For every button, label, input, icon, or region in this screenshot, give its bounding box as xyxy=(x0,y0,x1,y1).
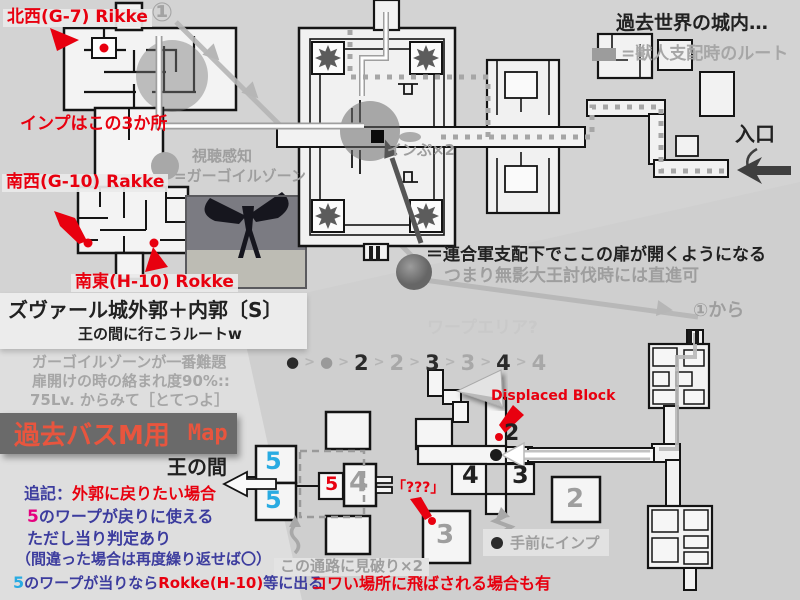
room-5-center: 5 xyxy=(325,475,338,495)
seq-token: 2 xyxy=(354,352,369,374)
gargoyle-note-1: ガーゴイルゾーンが一番難題 xyxy=(32,355,226,371)
world-note: 過去世界の城内… xyxy=(616,14,768,34)
from-one-label: ①から xyxy=(693,302,744,321)
page-subtitle: 王の間に行こうルートw xyxy=(78,327,242,343)
seq-token: > xyxy=(409,356,420,370)
gargoyle-note-3: 75Lv. からみて［とてつよ］ xyxy=(30,393,229,409)
label-imp-x2: インぷ×2 xyxy=(387,143,455,159)
label-sw-rakke: 南西(G-10) Rakke xyxy=(2,174,168,192)
scary-note: コワい場所に飛ばされる場合も有 xyxy=(311,576,551,593)
room-2-gray: 2 xyxy=(566,486,584,513)
castle-map xyxy=(277,0,585,260)
gargoyle-zone-blob-nw xyxy=(136,40,208,112)
warp-area-faint-label: ワープエリア? xyxy=(427,320,538,338)
room-5-top: 5 xyxy=(265,449,282,474)
room-5-bottom: 5 xyxy=(265,488,282,513)
door-note-line1: ＝連合軍支配下でここの扉が開くようになる xyxy=(426,247,766,265)
note-line-2: 5のワープが戻りに使える xyxy=(27,509,213,527)
map-banner: 過去バスM用 Map xyxy=(0,413,237,454)
note-2-rest: のワープが戻りに使える xyxy=(39,507,214,526)
gargoyle-zone-label: =ガーゴイルゾーン xyxy=(174,169,306,185)
throne-label: 王の間 xyxy=(167,457,227,478)
note-5-mid: のワープが当りなら xyxy=(24,574,158,592)
seq-token: > xyxy=(338,356,349,370)
junction-dot xyxy=(490,449,502,461)
mystery-label: 「???」 xyxy=(392,481,444,496)
note-1-prefix: 追記： xyxy=(24,484,72,503)
imp-near-band: 手前にインプ xyxy=(483,529,609,556)
maze-south-west xyxy=(78,187,188,279)
entrance-arrow-icon xyxy=(737,149,791,184)
cell-4-black: 4 xyxy=(462,463,479,488)
entrance-label: 入口 xyxy=(735,124,775,145)
seq-token: > xyxy=(480,356,491,370)
room-3-gray: 3 xyxy=(436,522,454,549)
imp-near-label: 手前にインプ xyxy=(510,532,600,553)
note-line-3: ただし当り判定あり xyxy=(27,531,171,548)
gargoyle-note-2: 扉開けの時の絡まれ度90%:: xyxy=(32,374,230,390)
room-4-throne: 4 xyxy=(349,467,368,496)
note-1-red: 外郭に戻りたい場合 xyxy=(72,484,216,503)
seq-token: 3 xyxy=(461,352,476,374)
beast-route-text: =獣人支配時のルート xyxy=(621,46,788,64)
note-line-4: （間違った場合は再度繰り返せば〇） xyxy=(16,552,271,568)
note-5-red: Rokke(H-10) xyxy=(158,574,263,592)
note-2-num: 5 xyxy=(27,507,39,527)
beast-route-legend: =獣人支配時のルート xyxy=(592,46,788,64)
seq-token: 2 xyxy=(390,352,405,374)
circled-one-icon: ① xyxy=(151,0,173,27)
seq-token: 4 xyxy=(532,352,547,374)
cell-3-black: 3 xyxy=(512,463,529,488)
displaced-block-label: Displaced Block xyxy=(491,389,615,404)
seq-token: > xyxy=(516,356,527,370)
seq-token: ● xyxy=(286,355,299,371)
seq-token: ● xyxy=(320,355,333,371)
seq-token: > xyxy=(445,356,456,370)
note-line-5: 5のワープが当りならRokke(H-10)等に出る xyxy=(13,575,323,592)
page-title: ズヴァール城外郭＋内郭〔S〕 xyxy=(8,300,282,321)
seq-token: > xyxy=(374,356,385,370)
banner-map-label: Map xyxy=(188,421,228,446)
seq-token: > xyxy=(304,356,315,370)
gargoyle-sense-label: 視聴感知 xyxy=(192,149,252,165)
screenshot-root: 過去バスM用 Map 手前にインプ 北西(G-7) Rikke ① 過去世界の城… xyxy=(0,0,800,600)
route-swatch-icon xyxy=(592,48,616,61)
label-se-rokke: 南東(H-10) Rokke xyxy=(71,274,238,292)
imp-dot-icon xyxy=(491,537,503,549)
cell-2-black: 2 xyxy=(504,422,519,445)
warp-sequence: ●>●>2>2>3>3>4>4 xyxy=(286,350,546,376)
note-line-1: 追記：外郭に戻りたい場合 xyxy=(24,486,216,503)
center-block xyxy=(371,130,384,143)
label-imp-spots: インプはこの3か所 xyxy=(20,116,167,134)
seq-token: 3 xyxy=(425,352,440,374)
note-5-num: 5 xyxy=(13,573,24,592)
door-note-line2: つまり無影大王討伐時には直進可 xyxy=(444,268,699,286)
seq-token: 4 xyxy=(496,352,511,374)
banner-title: 過去バスM用 xyxy=(14,415,170,452)
label-nw-rikke: 北西(G-7) Rikke xyxy=(3,9,152,27)
